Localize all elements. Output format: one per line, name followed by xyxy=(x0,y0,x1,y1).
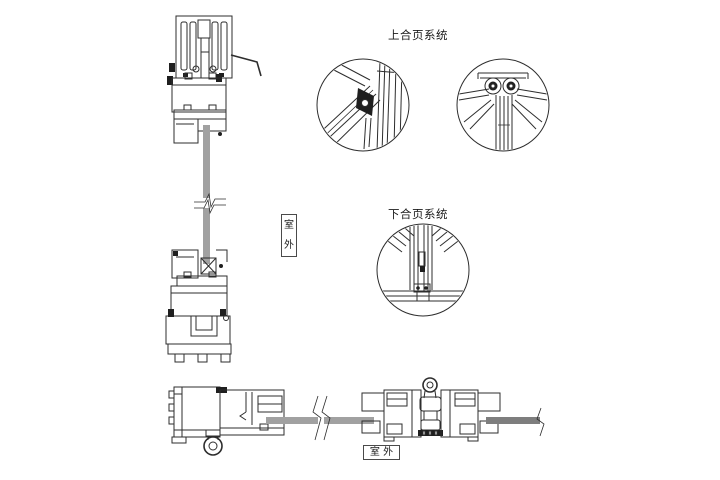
upper-hinge-system-label: 上合页系统 xyxy=(388,27,448,43)
lower-hinge-system-label: 下合页系统 xyxy=(388,206,448,222)
bottom-sash-profile xyxy=(171,250,227,316)
hinge-ring xyxy=(423,378,437,392)
horizontal-section-view xyxy=(169,378,544,455)
glass-pane-bottom-right xyxy=(486,417,540,424)
glazing-pocket-left xyxy=(362,393,384,433)
upper-hinge-detail-closed xyxy=(457,59,549,153)
glazing-pocket-right xyxy=(478,393,500,433)
top-sash-profile xyxy=(167,73,226,143)
jamb-profile xyxy=(169,387,220,443)
meeting-stile-right xyxy=(441,390,478,441)
handle-lever xyxy=(231,55,261,76)
upper-hinge-detail-open xyxy=(312,59,409,154)
hinge-roller-left xyxy=(485,78,501,94)
meeting-stile-left xyxy=(384,390,421,441)
outdoor-label-vertical: 室外 xyxy=(281,214,297,257)
vertical-section-view xyxy=(166,16,261,362)
outdoor-label-horizontal: 室 外 xyxy=(363,445,400,460)
lower-hinge-detail xyxy=(377,222,469,316)
sill-profile xyxy=(166,309,231,362)
head-track-profile xyxy=(169,16,232,78)
hinge-roller-right xyxy=(503,78,519,94)
hinge-system-technical-drawing xyxy=(0,0,720,480)
bottom-hinge-assembly xyxy=(418,378,443,436)
page: { "labels": { "upper_hinge_system": "上合页… xyxy=(0,0,720,480)
hinge-knuckle xyxy=(204,430,222,455)
